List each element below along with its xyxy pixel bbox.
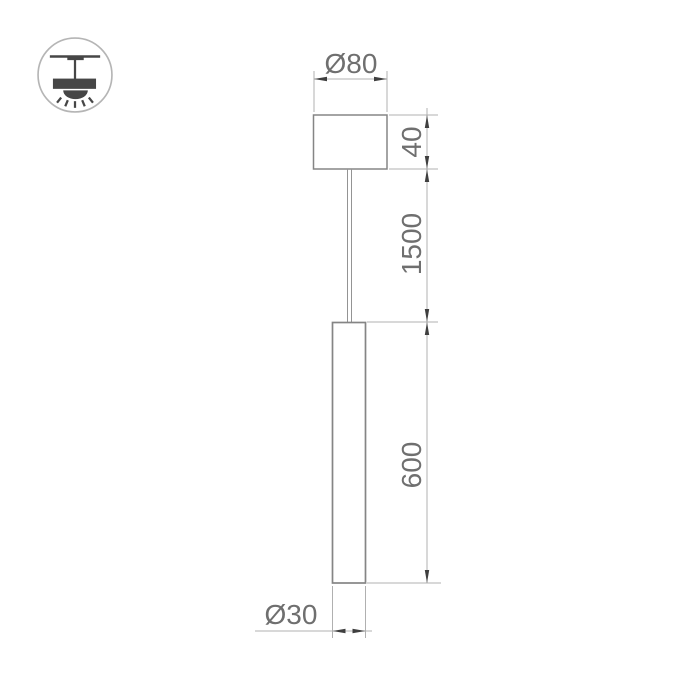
dimension-tube-length: 600: [396, 322, 429, 583]
tube-length-label: 600: [396, 442, 427, 489]
canopy-outline: [314, 115, 388, 169]
canopy-diameter-label: Ø80: [325, 48, 378, 79]
dimension-canopy-height: 40: [396, 115, 429, 169]
drawing-canvas: Ø80 40 1500 600: [0, 0, 700, 700]
dimension-tube-diameter: Ø30: [255, 586, 372, 638]
technical-drawing: Ø80 40 1500 600: [0, 0, 700, 700]
dimension-suspension-length: 1500: [396, 169, 429, 322]
tube-outline: [333, 323, 366, 584]
suspension-wire: [348, 169, 352, 322]
dimension-canopy-diameter: Ø80: [314, 48, 387, 112]
canopy-height-label: 40: [396, 126, 427, 157]
suspension-length-label: 1500: [396, 213, 427, 275]
right-dimension-line: [367, 108, 441, 583]
tube-diameter-label: Ø30: [265, 599, 318, 630]
lamp-geometry: [314, 115, 388, 583]
